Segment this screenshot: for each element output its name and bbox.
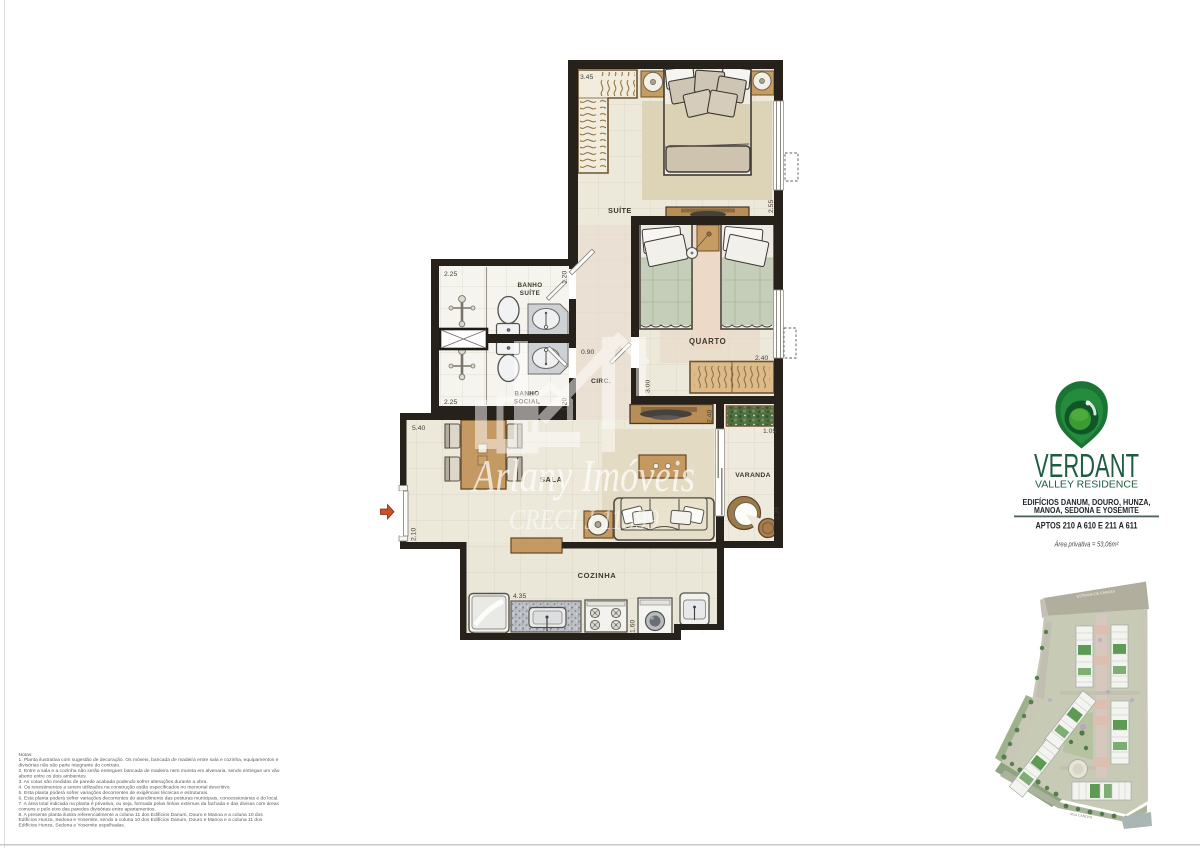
svg-text:Área privativa = 53,06m²: Área privativa = 53,06m² — [1054, 540, 1119, 549]
svg-text:1.20: 1.20 — [562, 271, 569, 284]
svg-text:7. A área total indicada na pl: 7. A área total indicada na planta é pri… — [19, 801, 280, 807]
svg-text:BANHO: BANHO — [517, 282, 542, 289]
svg-text:Arlany Imóveis: Arlany Imóveis — [471, 450, 695, 501]
svg-text:5. Esta planta poderá sofrer v: 5. Esta planta poderá sofrer variações d… — [19, 790, 209, 796]
svg-text:6. Esta planta poderá sofrer v: 6. Esta planta poderá sofrer variações d… — [19, 795, 279, 801]
svg-text:aberto entre os dois ambientes: aberto entre os dois ambientes. — [19, 774, 88, 780]
svg-text:SUÍTE: SUÍTE — [608, 206, 632, 215]
svg-text:2. Entre a sala e a cozinha nã: 2. Entre a sala e a cozinha não serão en… — [19, 768, 280, 774]
svg-text:3.45: 3.45 — [580, 74, 593, 81]
svg-text:2.40: 2.40 — [755, 355, 768, 362]
svg-text:1.60: 1.60 — [630, 620, 637, 633]
svg-text:0.90: 0.90 — [581, 349, 594, 356]
svg-text:COZINHA: COZINHA — [578, 571, 617, 580]
svg-text:4.35: 4.35 — [513, 593, 526, 600]
svg-text:2.25: 2.25 — [444, 271, 457, 278]
svg-text:2.40: 2.40 — [707, 410, 714, 423]
svg-text:2.36: 2.36 — [774, 507, 781, 520]
svg-text:3. As cotas são medidas de par: 3. As cotas são medidas de parede acabad… — [19, 779, 208, 785]
svg-text:Notas:: Notas: — [19, 752, 33, 758]
svg-text:MANOA, SEDONA E YOSEMITE: MANOA, SEDONA E YOSEMITE — [1034, 505, 1139, 515]
svg-text:2.10: 2.10 — [411, 528, 418, 541]
svg-text:VARANDA: VARANDA — [735, 472, 771, 479]
svg-text:1. Planta ilustrativa com suge: 1. Planta ilustrativa com sugestão de de… — [19, 757, 279, 763]
svg-text:1.05: 1.05 — [763, 428, 776, 435]
svg-text:Edifícios Hunza, Sedona e Yose: Edifícios Hunza, Sedona e Yosemite espel… — [19, 823, 126, 829]
svg-text:comuns e pelo eixo das paredes: comuns e pelo eixo das paredes divisória… — [19, 806, 156, 812]
svg-text:VALLEY RESIDENCE: VALLEY RESIDENCE — [1035, 479, 1138, 491]
svg-text:5.40: 5.40 — [412, 425, 425, 432]
svg-text:8. A presente planta ilustra r: 8. A presente planta ilustra referencial… — [19, 812, 264, 818]
svg-text:CRECI J 11599: CRECI J 11599 — [509, 504, 659, 536]
svg-text:2.55: 2.55 — [768, 200, 775, 213]
svg-text:4. Os revestimentos a serem ut: 4. Os revestimentos a serem utilizados n… — [19, 785, 231, 791]
svg-text:2.25: 2.25 — [444, 399, 457, 406]
svg-text:divisórias não são parte integ: divisórias não são parte integrante do c… — [19, 763, 121, 769]
svg-text:Edifícios Hunza, Sedona e Yose: Edifícios Hunza, Sedona e Yosemite, send… — [19, 817, 263, 823]
svg-text:SUÍTE: SUÍTE — [520, 288, 541, 297]
svg-text:QUARTO: QUARTO — [689, 337, 726, 346]
svg-text:APTOS 210 A 610 E 211 A 611: APTOS 210 A 610 E 211 A 611 — [1036, 520, 1138, 531]
